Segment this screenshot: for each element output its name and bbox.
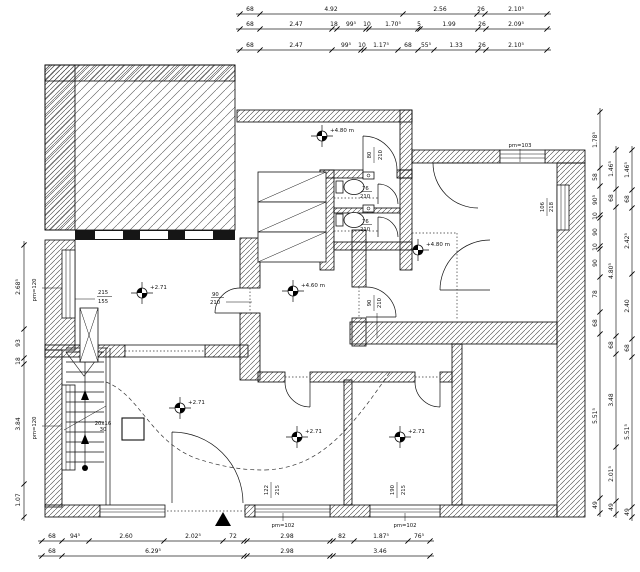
dim-value: 10 <box>363 21 371 28</box>
level-label: +4.80 m <box>330 128 354 134</box>
window-size-label-122-215: 122 215 <box>264 482 281 498</box>
wall-segment <box>240 238 260 288</box>
dim-value: 26 <box>477 6 485 13</box>
dim-value: 1.99 <box>442 21 456 28</box>
closet-shelves <box>258 172 326 262</box>
dim-chain-top-3: 682.4799⁵101.17⁵6855⁵1.33262.10⁵ <box>236 42 551 53</box>
dim-value: 99⁵ <box>341 42 352 49</box>
column <box>122 418 144 440</box>
door-room-right <box>415 382 440 407</box>
dim-value: 1.17⁵ <box>373 42 389 49</box>
wall-segment <box>545 150 585 163</box>
door-hall-upper <box>433 163 478 208</box>
dim-value: 68 <box>404 42 412 49</box>
dim-value: 2.47 <box>289 21 303 28</box>
window-size-label-106-218: 106 218 <box>540 198 555 216</box>
svg-text:106: 106 <box>540 201 546 212</box>
dim-value: 90 <box>592 259 599 267</box>
dim-chain-left: 2.68⁵93183.841.07 <box>15 241 27 521</box>
dim-value: 72 <box>229 533 237 540</box>
band-window <box>140 231 168 239</box>
dim-value: 4.80⁵ <box>608 263 615 279</box>
wall-segment <box>45 350 62 507</box>
dim-value: 18 <box>330 21 338 28</box>
dim-value: 76⁵ <box>414 533 425 540</box>
wall-segment <box>320 170 363 178</box>
dim-chain-bottom-1: 6894⁵2.602.02⁵722.98821.87⁵76⁵ <box>38 533 434 544</box>
dim-value: 68 <box>48 533 56 540</box>
svg-text:pm=102: pm=102 <box>271 523 294 529</box>
wall-segment <box>352 230 366 287</box>
svg-text:pm=103: pm=103 <box>508 143 531 149</box>
svg-text:215: 215 <box>401 485 407 495</box>
svg-text:pm=120: pm=120 <box>32 416 38 440</box>
wall-segment <box>45 505 100 517</box>
sink-upper <box>363 172 374 179</box>
dim-value: 58 <box>592 173 599 181</box>
dim-value: 2.98 <box>280 533 294 540</box>
dim-value: 3.46 <box>373 548 387 555</box>
stair-start-dot <box>82 465 88 471</box>
svg-text:80: 80 <box>367 151 373 158</box>
stair-arrow-mid <box>81 390 89 400</box>
dim-value: 2.10⁵ <box>508 6 524 13</box>
door-wc-lower <box>378 217 398 237</box>
dim-value: 1.33 <box>449 42 463 49</box>
wall-segment <box>310 372 415 382</box>
dim-value: 2.60 <box>119 533 133 540</box>
window-size-label-215-155: 215 155 <box>75 290 112 305</box>
floor-plan-page: 684.922.56262.10⁵ 682.471899⁵101.70⁵51.9… <box>0 0 640 567</box>
svg-text:190: 190 <box>390 484 396 495</box>
toilet-upper <box>336 180 364 195</box>
dim-chain-bottom-2: 686.29⁵2.983.46 <box>38 548 434 559</box>
wall-segment <box>397 170 412 178</box>
dim-value: 82 <box>338 533 346 540</box>
dim-value: 68 <box>624 344 631 352</box>
wall-segment <box>237 110 412 122</box>
stair-note-label: 20x16 30 <box>95 421 112 433</box>
dim-value: 68 <box>48 548 56 555</box>
svg-text:76: 76 <box>362 186 369 192</box>
door-size-label-80-210: 80 210 <box>367 147 384 163</box>
dim-value: 99⁵ <box>346 21 357 28</box>
dim-value: 10 <box>592 212 599 220</box>
dim-value: 2.47 <box>289 42 303 49</box>
dim-value: 68 <box>624 195 631 203</box>
dim-value: 3.48 <box>608 393 615 407</box>
level-label: +4.60 m <box>301 283 325 289</box>
wall-segment <box>350 322 557 344</box>
door-size-label-90-210-left: 90 210 <box>210 292 252 306</box>
sink-lower <box>363 205 374 212</box>
dim-value: 2.98 <box>280 548 294 555</box>
dim-value: 6.29⁵ <box>145 548 161 555</box>
svg-text:pm=120: pm=120 <box>32 278 38 302</box>
window-left-upper <box>62 250 75 318</box>
dim-value: 2.68⁵ <box>15 279 22 295</box>
dim-value: 1.46⁵ <box>624 162 631 178</box>
dim-value: 26 <box>478 21 486 28</box>
level-label: +2.71 <box>188 400 205 406</box>
dim-value: 49 <box>624 508 631 516</box>
band-window <box>185 231 213 239</box>
dim-value: 1.87⁵ <box>373 533 389 540</box>
wall-segment <box>412 150 500 163</box>
dim-value: 2.42⁵ <box>624 233 631 249</box>
dim-value: 5.51⁵ <box>592 408 599 424</box>
door-wc-upper <box>378 184 398 204</box>
svg-text:122: 122 <box>264 485 270 495</box>
svg-text:210: 210 <box>210 300 221 306</box>
level-label: +2.71 <box>305 429 322 435</box>
dim-value: 2.40 <box>624 299 631 313</box>
dim-value: 90⁵ <box>592 194 599 205</box>
dim-value: 5.51⁵ <box>624 424 631 440</box>
svg-text:215: 215 <box>98 290 108 296</box>
wall-segment <box>245 505 255 517</box>
svg-text:pm=102: pm=102 <box>393 523 416 529</box>
dim-chain-right-middle: 1.46⁵684.80⁵683.482.01⁵49 <box>608 146 619 518</box>
dim-value: 18 <box>15 357 22 365</box>
dim-value: 5 <box>417 21 421 28</box>
dim-chain-top-1: 684.922.56262.10⁵ <box>236 6 551 17</box>
svg-text:210: 210 <box>377 297 383 308</box>
dim-value: 4.92 <box>324 6 338 13</box>
wall-segment <box>344 380 352 505</box>
wall-opening <box>125 345 205 357</box>
svg-text:215: 215 <box>275 485 281 495</box>
dim-value: 2.09⁵ <box>508 21 524 28</box>
dim-chain-top-2: 682.471899⁵101.70⁵51.99262.09⁵ <box>236 21 551 32</box>
svg-text:210: 210 <box>360 227 371 233</box>
dim-value: 26 <box>478 42 486 49</box>
dim-value: 2.10⁵ <box>508 42 524 49</box>
svg-text:30: 30 <box>100 427 107 433</box>
dim-value: 49 <box>608 503 615 511</box>
wall-segment <box>45 65 235 81</box>
window-top-right <box>500 150 545 163</box>
walls <box>45 65 585 517</box>
shaft-x-box <box>80 308 98 362</box>
wall-segment <box>400 110 412 178</box>
wall-segment <box>440 505 557 517</box>
dim-value: 94⁵ <box>70 533 81 540</box>
dim-value: 68 <box>592 319 599 327</box>
wall-segment <box>330 505 370 517</box>
svg-text:76: 76 <box>362 219 369 225</box>
dim-value: 10 <box>592 243 599 251</box>
dim-value: 68 <box>246 6 254 13</box>
level-label: +2.71 <box>408 429 425 435</box>
dim-value: 1.78⁵ <box>592 132 599 148</box>
dim-value: 2.56 <box>433 6 447 13</box>
svg-text:90: 90 <box>212 292 219 298</box>
window-right <box>557 185 569 230</box>
dim-value: 78 <box>592 290 599 298</box>
band-window <box>95 231 123 239</box>
dim-value: 2.01⁵ <box>608 466 615 482</box>
dim-value: 1.70⁵ <box>385 21 401 28</box>
window-bottom-1 <box>100 505 165 517</box>
dim-value: 1.07 <box>15 493 22 507</box>
wall-segment <box>400 170 412 270</box>
door-room-center <box>285 382 310 407</box>
level-label: +4.80 m <box>426 242 450 248</box>
floor-plan-drawing: 684.922.56262.10⁵ 682.471899⁵101.70⁵51.9… <box>0 0 640 567</box>
dim-value: 90 <box>592 228 599 236</box>
wall-segment <box>258 372 285 382</box>
dim-value: 68 <box>246 42 254 49</box>
dim-value: 68 <box>246 21 254 28</box>
wall-segment <box>452 344 462 505</box>
dim-chain-right-outer: 1.46⁵682.42⁵2.40685.51⁵49 <box>624 146 635 521</box>
wall-segment <box>440 372 452 382</box>
dim-value: 3.84 <box>15 417 22 431</box>
stair-arrow-mid2 <box>81 434 89 444</box>
svg-text:210: 210 <box>378 149 384 160</box>
dim-value: 1.46⁵ <box>608 161 615 177</box>
svg-text:210: 210 <box>360 194 371 200</box>
svg-text:155: 155 <box>98 299 108 305</box>
dim-value: 93 <box>15 339 22 347</box>
dim-value: 10 <box>358 42 366 49</box>
svg-text:218: 218 <box>549 201 555 212</box>
window-bottom-2 <box>255 505 330 517</box>
dim-value: 49 <box>592 501 599 509</box>
wall-segment <box>240 313 260 380</box>
entrance-marker <box>215 512 231 526</box>
dim-chain-right-inner: 1.78⁵5890⁵1090109078685.51⁵49 <box>592 108 603 517</box>
level-label: +2.71 <box>150 285 167 291</box>
window-size-label-190-215: 190 215 <box>390 482 407 498</box>
dim-value: 2.02⁵ <box>185 533 201 540</box>
dim-value: 68 <box>608 341 615 349</box>
dim-value: 55⁵ <box>421 42 432 49</box>
wall-segment <box>45 65 75 230</box>
dim-value: 68 <box>608 194 615 202</box>
toilet-lower <box>336 213 364 228</box>
svg-text:90: 90 <box>367 299 373 306</box>
wall-segment <box>334 242 412 250</box>
